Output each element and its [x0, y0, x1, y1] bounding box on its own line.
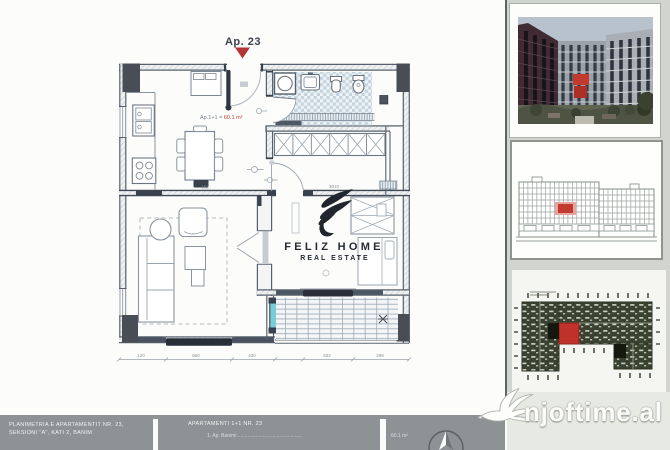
svg-text:Ap.1+1 = 60.1 m²: Ap.1+1 = 60.1 m² [200, 115, 243, 121]
svg-text:660: 660 [192, 353, 200, 358]
svg-text:REAL ESTATE: REAL ESTATE [300, 255, 369, 262]
svg-text:3010: 3010 [329, 184, 340, 189]
svg-text:162: 162 [201, 185, 209, 190]
svg-text:502: 502 [323, 353, 331, 358]
svg-text:Ap. 23: Ap. 23 [225, 36, 261, 48]
svg-text:430: 430 [248, 353, 256, 358]
svg-text:298: 298 [376, 353, 384, 358]
svg-text:FELIZ HOME: FELIZ HOME [284, 241, 384, 253]
svg-text:120: 120 [137, 353, 145, 358]
